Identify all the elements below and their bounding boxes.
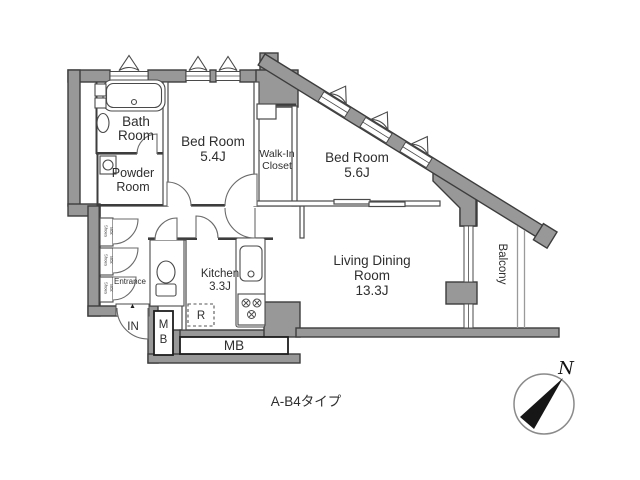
bath-shelf-icon bbox=[95, 98, 106, 108]
wall-bottom-left bbox=[88, 306, 118, 316]
bath-room-label: Bath bbox=[122, 114, 150, 129]
floor-plan-drawing: Bath Room Powder Room Bed Room 5.4J Walk… bbox=[0, 0, 640, 480]
mb-vertical-m: M bbox=[159, 319, 169, 331]
living-dining-label: Living Dining bbox=[333, 253, 410, 268]
box-label: Box bbox=[109, 284, 114, 292]
shoes-label: Shoes bbox=[104, 225, 109, 237]
box-label: Box bbox=[109, 256, 114, 264]
plan-type-label: A-B4タイプ bbox=[271, 394, 342, 409]
powder-left-line bbox=[97, 154, 99, 206]
closet-notch bbox=[257, 104, 276, 119]
wall-ld-right-chunk bbox=[446, 282, 477, 304]
wall-top-3 bbox=[210, 70, 216, 82]
window-swing-icon bbox=[189, 57, 207, 71]
in-label: IN bbox=[127, 321, 139, 333]
bedroom-b-size: 5.6J bbox=[344, 165, 370, 180]
bathtub-drain-icon bbox=[132, 100, 137, 105]
kitchen-size: 3.3J bbox=[209, 281, 231, 293]
washbasin-icon bbox=[97, 114, 109, 133]
powder-room-label2: Room bbox=[116, 180, 149, 194]
corridor-top-line-1 bbox=[98, 204, 167, 207]
shoes-label: Shoes bbox=[104, 282, 109, 294]
stove-icon bbox=[238, 294, 265, 325]
box-label: Box bbox=[109, 227, 114, 235]
bedroom-a-label: Bed Room bbox=[181, 134, 245, 149]
shoes-door-arc bbox=[113, 248, 138, 273]
wall-left-lower bbox=[88, 206, 100, 316]
wall-kitchen-bottom bbox=[180, 330, 266, 337]
window-swing-icon bbox=[219, 57, 237, 71]
wall-kitchen-ld-chunk bbox=[264, 302, 300, 337]
living-door-arc bbox=[225, 208, 255, 238]
faucet-icon bbox=[248, 271, 254, 277]
bath-powder-divider-1 bbox=[96, 152, 137, 155]
living-dining-size: 13.3J bbox=[355, 283, 388, 298]
toilet-tank-icon bbox=[156, 284, 176, 296]
kitchen-label: Kitchen bbox=[201, 268, 239, 280]
wall-ld-bottom bbox=[296, 328, 559, 337]
refrigerator-label: R bbox=[197, 310, 205, 322]
window-swing-icon bbox=[119, 56, 139, 71]
sliding-door-panel-1 bbox=[334, 200, 370, 205]
powder-room-label: Powder bbox=[112, 166, 154, 180]
bedroom-a-door-arc bbox=[167, 182, 191, 206]
compass: N bbox=[514, 358, 575, 434]
toilet-door-arc bbox=[155, 218, 177, 240]
compass-north-label: N bbox=[557, 358, 575, 379]
balcony-label: Balcony bbox=[496, 244, 508, 285]
walk-in-closet-label2: Closet bbox=[262, 160, 292, 172]
mb-vertical-b: B bbox=[160, 334, 168, 346]
toilet-icon bbox=[157, 261, 175, 283]
sliding-door-panel-2 bbox=[369, 202, 405, 207]
living-dining-label2: Room bbox=[354, 268, 390, 283]
kitchen-door-arc bbox=[196, 216, 218, 238]
shoes-label: Shoes bbox=[104, 254, 109, 266]
compass-needle-icon bbox=[520, 378, 563, 429]
shoes-door-arc bbox=[113, 219, 138, 244]
bedroom-b-label: Bed Room bbox=[325, 150, 389, 165]
balcony-openings bbox=[464, 226, 525, 328]
bedroom-a-size: 5.4J bbox=[200, 149, 226, 164]
mb-horizontal-label: MB bbox=[224, 338, 244, 353]
meter-box-vertical bbox=[154, 311, 173, 355]
corridor-top-line-2 bbox=[191, 204, 225, 207]
floor-plan-page: Bath Room Powder Room Bed Room 5.4J Walk… bbox=[0, 0, 640, 480]
bath-room-label2: Room bbox=[118, 128, 154, 143]
entrance-label: Entrance bbox=[114, 277, 147, 286]
wall-corridor-ld-stub bbox=[300, 206, 304, 238]
walk-in-closet-label: Walk-In bbox=[259, 148, 294, 160]
bath-shelf-icon bbox=[95, 84, 106, 96]
wall-left-upper bbox=[68, 70, 80, 206]
closet-door-arc bbox=[225, 174, 257, 206]
